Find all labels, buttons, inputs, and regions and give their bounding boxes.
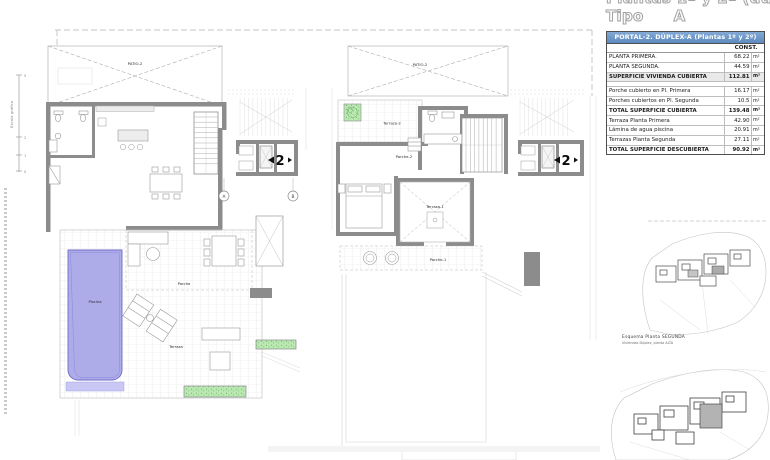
row-unit: m² [752,106,764,115]
porche-1: Porche-1 [340,246,482,270]
porche1-label: Porche-1 [430,257,447,262]
key-plan-upper: Esquema Planta SEGUNDA Viviendas Dúplex,… [622,221,768,345]
patio-void-right: PATIO-2 [348,46,508,96]
scale-tick-5: 5 [24,74,26,78]
row-unit: m² [752,63,764,72]
row-label: TOTAL SUPERFICIE CUBIERTA [607,106,724,115]
row-unit: m² [752,73,764,82]
wall-block [524,252,540,286]
row-value: 44.59 [724,63,753,72]
row-value: 27.11 [724,136,753,145]
sheet-subtitle: Tipo A [606,8,770,25]
row-label: TOTAL SUPERFICIE DESCUBIERTA [607,146,724,155]
table-row: Terraza Planta Primera 42.90 m² [607,116,764,126]
row-unit: m² [752,53,764,62]
patio-void-left: PATIO-2 [48,46,222,106]
level-marker-right: 2 [561,154,570,169]
row-unit: m² [752,136,764,145]
plan-sheet: 5 2 1 0 Escala gráfica PATIO-2 [0,0,770,460]
grid-bubble-b: B [291,194,294,200]
scale-label: Escala gráfica [9,100,14,128]
elevator-core-right: 2 [518,140,584,176]
const-col-label: CONST. [728,45,764,51]
terraza-1: Terraza-1 [400,182,470,242]
row-label: Porche cubierto en Pl. Primera [607,87,724,96]
level-marker-left: 2 [275,154,284,169]
row-label: Lámina de agua piscina [607,126,724,135]
row-unit: m² [752,97,764,106]
table-row: Lámina de agua piscina 20.91 m² [607,126,764,136]
table-row: PLANTA PRIMERA. 68.22 m² [607,53,764,63]
terraza-label: Terraza [168,344,183,349]
stair-left [194,112,218,174]
planter-strip-right [256,340,296,349]
type-label: Tipo [606,8,644,25]
row-unit: m² [752,116,764,125]
patio-label: PATIO-2 [128,61,143,66]
row-label: Terrazas Planta Segunda [607,136,724,145]
outdoor-dining [204,236,244,266]
fade-band [268,446,600,452]
porche2-label: Porche-2 [396,154,413,159]
row-value: 10.5 [724,97,753,106]
row-value: 16.17 [724,87,753,96]
areas-col-header: CONST. [607,44,764,53]
areas-table-header: PORTAL-2. DÚPLEX-A (Plantas 1º y 2º) [607,32,764,44]
areas-table: PORTAL-2. DÚPLEX-A (Plantas 1º y 2º) CON… [606,31,765,155]
table-row-total: TOTAL SUPERFICIE CUBIERTA 139.48 m² [607,106,764,116]
table-row: PLANTA SEGUNDA. 44.59 m² [607,63,764,73]
row-value: 20.91 [724,126,753,135]
row-value: 112.81 [724,73,753,82]
row-label: Porches cubiertos en Pl. Segunda [607,97,724,106]
row-unit: m² [752,87,764,96]
row-value: 42.90 [724,116,753,125]
dining-table [150,167,182,199]
sheet-title: Plantas 1ª y 2ª (dúplex) [606,0,770,7]
key-plan-lower [611,369,768,460]
table-row: Porches cubiertos en Pl. Segunda 10.5 m² [607,97,764,107]
table-row-total: SUPERFICIE VIVIENDA CUBIERTA 112.81 m² [607,73,764,83]
highlighted-unit [700,404,722,428]
table-row: Terrazas Planta Segunda 27.11 m² [607,136,764,146]
plan-second-floor: PATIO-2 Terraza-2 [336,46,596,460]
row-value: 139.48 [724,106,753,115]
table-row-total: TOTAL SUPERFICIE DESCUBIERTA 90.92 m² [607,146,764,155]
piscina-label: Piscina [88,299,101,304]
bedroom [338,184,391,228]
terraza1-label: Terraza-1 [425,204,444,209]
graphic-scale: 5 2 1 0 Escala gráfica [9,74,27,174]
context-stair-left [228,90,296,136]
table-row: Porche cubierto en Pl. Primera 16.17 m² [607,87,764,97]
scale-tick-2: 2 [24,136,26,140]
row-label: SUPERFICIE VIVIENDA CUBIERTA [607,73,724,82]
pool-overflow-band [66,382,124,391]
row-label: PLANTA SEGUNDA. [607,63,724,72]
margin-disclaimer-strip [4,188,7,414]
stair-right [462,118,502,172]
plan-first-floor: PATIO-2 [46,46,332,436]
grid-bubble-a: A [222,194,225,200]
key-plan-caption-line1: Esquema Planta SEGUNDA [622,334,685,340]
porche-label: Porche [178,281,191,286]
key-plan-caption-line2: Viviendas Dúplex, planta ALTA [622,341,674,345]
planter-strip-bottom [184,386,246,397]
terraza2-label: Terraza-2 [382,121,401,126]
pool: Piscina [66,250,124,391]
scale-tick-1: 1 [24,154,26,158]
terraza-2: Terraza-2 [338,100,422,142]
row-label: PLANTA PRIMERA. [607,53,724,62]
title-block: Plantas 1ª y 2ª (dúplex) Tipo A [606,0,770,25]
elevator-core-left: 2 [236,140,298,176]
row-value: 90.92 [724,146,753,155]
row-unit: m² [752,146,764,155]
row-label: Terraza Planta Primera [607,116,724,125]
kitchen [96,106,154,150]
row-value: 68.22 [724,53,753,62]
grid-bubbles: A B [219,178,298,201]
row-unit: m² [752,126,764,135]
context-stair-right [510,90,584,136]
patio-label-right: PATIO-2 [413,62,428,67]
scale-tick-0: 0 [24,170,27,174]
bathroom-fixtures-left [49,111,88,184]
type-value: A [674,8,686,25]
